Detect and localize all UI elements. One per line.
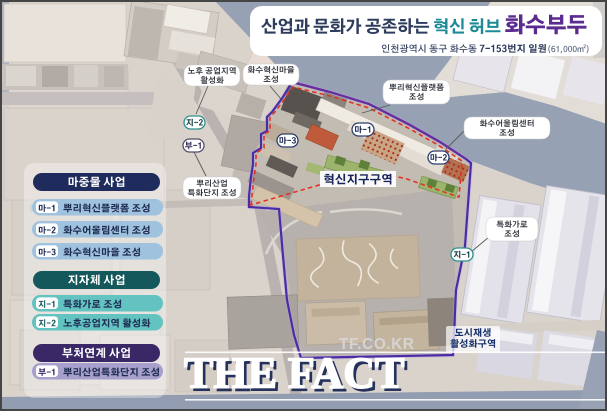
svg-text:THE FACT: THE FACT	[184, 349, 404, 398]
